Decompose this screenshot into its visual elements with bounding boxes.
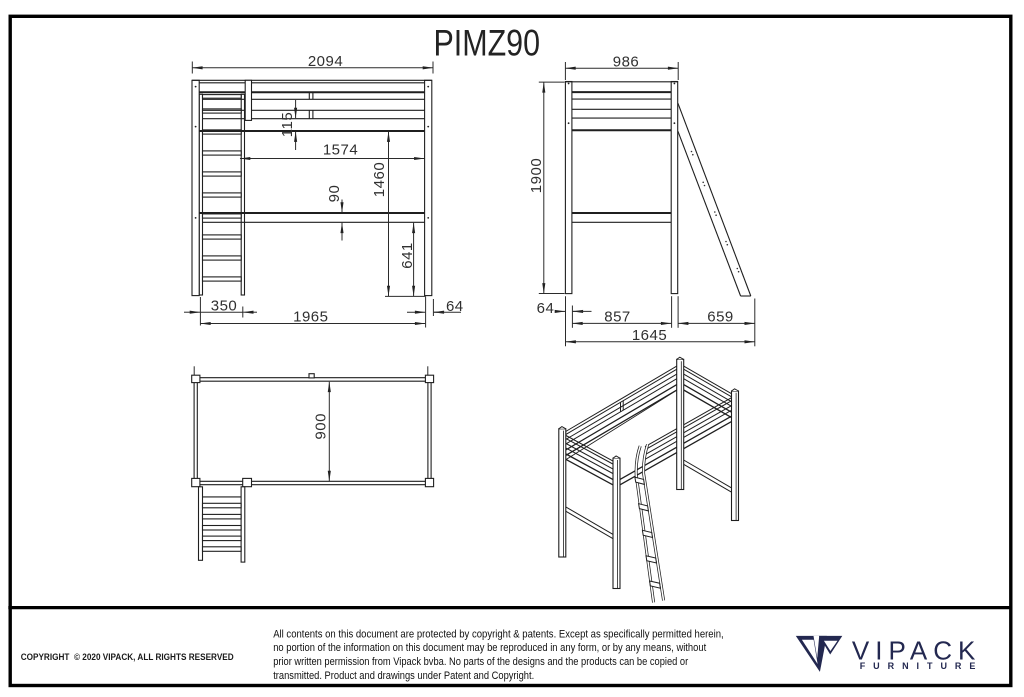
svg-text:900: 900 — [312, 413, 329, 440]
svg-text:1460: 1460 — [371, 162, 388, 197]
svg-text:986: 986 — [613, 53, 640, 70]
svg-text:COPYRIGHT © 2020 VIPACK, ALL: COPYRIGHT © 2020 VIPACK, ALL RIGHTS RESE… — [21, 652, 234, 663]
svg-text:857: 857 — [604, 309, 631, 326]
svg-text:2094: 2094 — [308, 53, 343, 70]
svg-text:1965: 1965 — [293, 309, 328, 326]
svg-text:FURNITURE: FURNITURE — [860, 661, 976, 671]
svg-text:prior written permission from: prior written permission from Vipack bvb… — [273, 656, 688, 668]
svg-text:1574: 1574 — [323, 142, 358, 159]
svg-text:1900: 1900 — [528, 158, 545, 193]
svg-text:64: 64 — [537, 300, 555, 317]
svg-text:659: 659 — [707, 309, 734, 326]
svg-text:90: 90 — [326, 185, 343, 203]
svg-text:350: 350 — [211, 297, 238, 314]
svg-text:no portion of the information: no portion of the information on this do… — [273, 642, 706, 654]
svg-text:PIMZ90: PIMZ90 — [434, 23, 541, 64]
svg-text:transmitted. Product and drawi: transmitted. Product and drawings under … — [273, 670, 534, 682]
svg-text:64: 64 — [446, 298, 464, 315]
svg-text:1645: 1645 — [632, 327, 667, 344]
svg-text:641: 641 — [399, 242, 416, 269]
svg-text:115: 115 — [279, 112, 296, 137]
svg-text:All contents on this document: All contents on this document are protec… — [273, 628, 724, 640]
